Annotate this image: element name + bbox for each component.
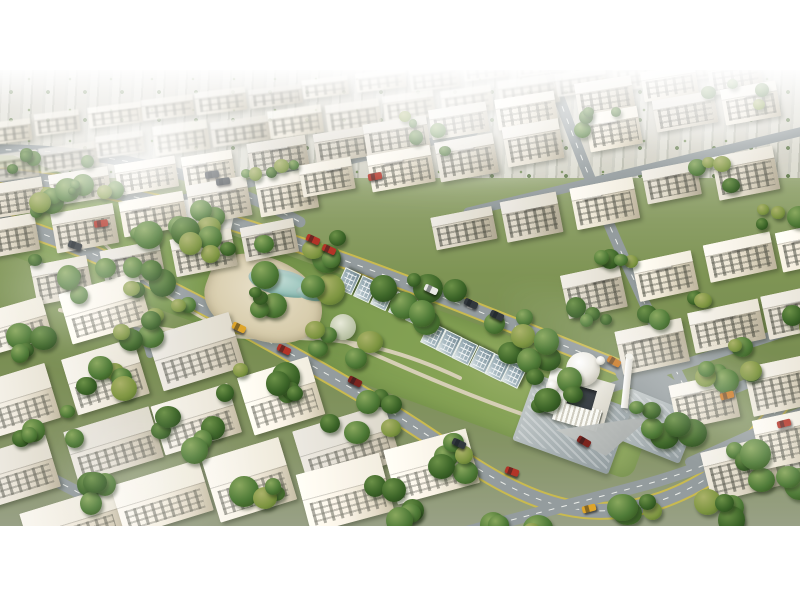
tree	[594, 250, 610, 265]
tree	[428, 454, 455, 479]
horizon-haze	[0, 70, 800, 220]
roof-structure	[782, 291, 800, 305]
roof-structure	[652, 258, 671, 270]
tree	[329, 230, 346, 246]
tree	[563, 386, 583, 403]
tree	[382, 478, 406, 502]
tree	[60, 405, 75, 418]
tree	[344, 421, 369, 444]
roof-structure	[712, 307, 735, 320]
tree	[381, 419, 401, 436]
tree	[320, 414, 340, 433]
tree	[287, 386, 303, 401]
tree	[345, 348, 367, 369]
roof-structure	[728, 239, 750, 251]
tree	[22, 427, 37, 443]
tree	[233, 363, 248, 377]
roof-structure	[589, 270, 609, 283]
tree	[443, 279, 467, 303]
tree	[409, 300, 435, 327]
roof-structure	[311, 469, 339, 489]
tree	[694, 293, 712, 308]
tree	[305, 321, 325, 339]
tree	[216, 384, 234, 402]
tree	[251, 261, 278, 289]
letterbox-bottom	[0, 526, 800, 600]
screenshot	[0, 0, 800, 600]
tree	[370, 275, 397, 303]
tree	[782, 305, 800, 326]
tree	[614, 254, 628, 266]
aerial-render-photo	[0, 70, 800, 526]
roof-structure	[790, 229, 800, 242]
tree	[301, 275, 325, 298]
roof-structure	[0, 447, 24, 465]
tree	[639, 494, 657, 510]
tree	[607, 494, 638, 521]
letterbox-top	[0, 0, 800, 70]
tree	[534, 388, 561, 412]
tree	[715, 494, 733, 512]
tree	[453, 461, 478, 485]
